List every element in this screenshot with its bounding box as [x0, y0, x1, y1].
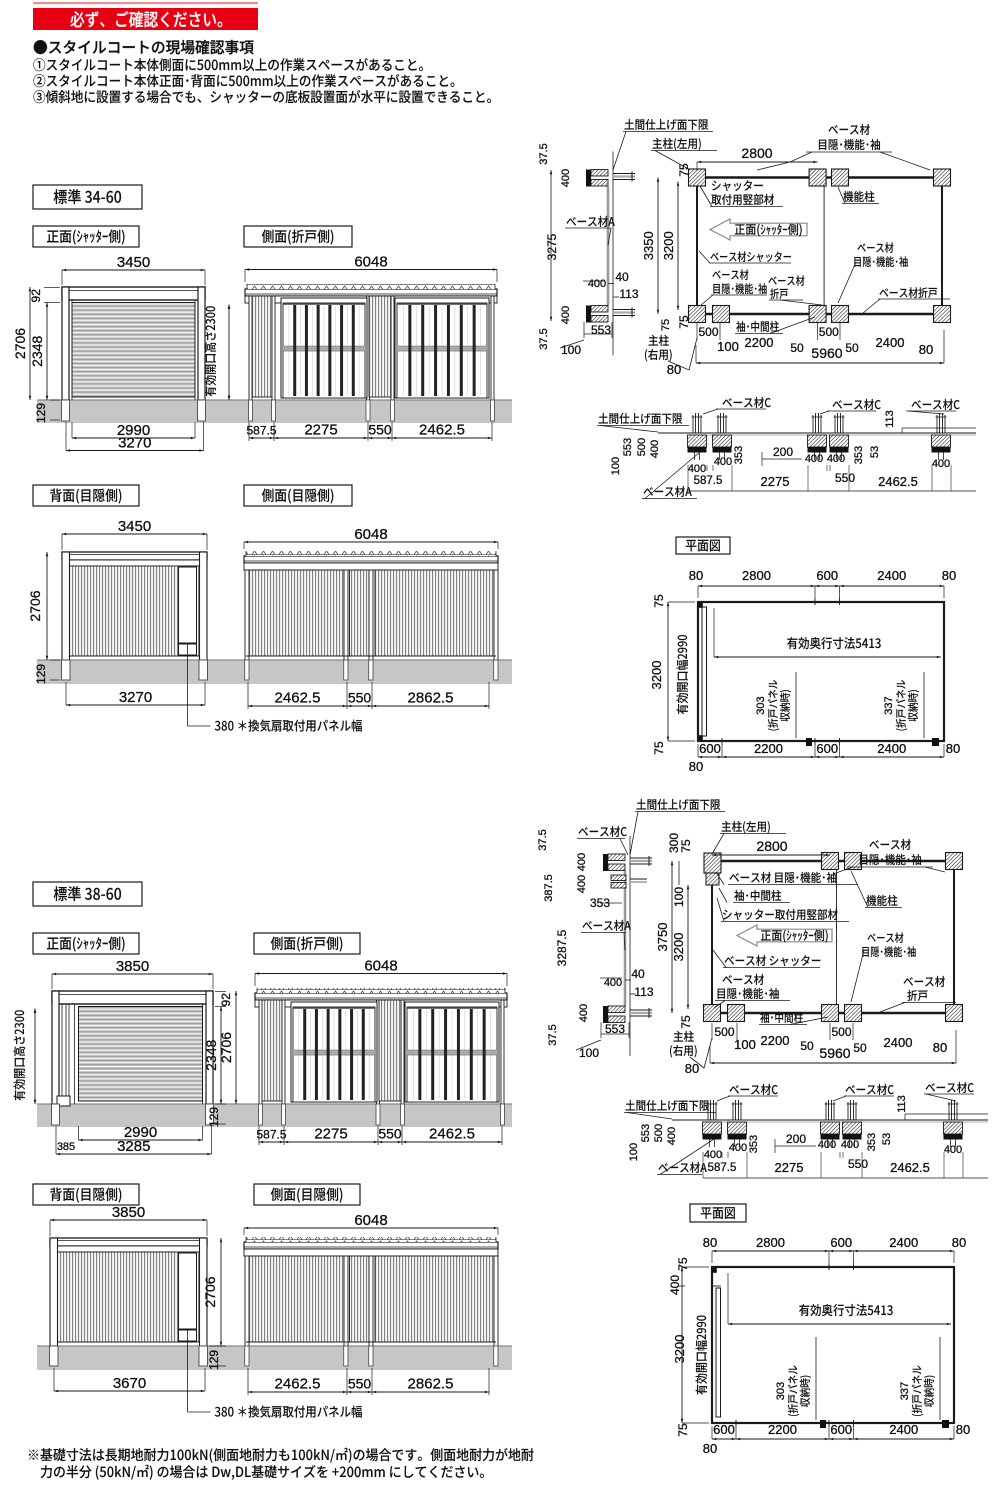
- svg-text:2400: 2400: [889, 1422, 918, 1437]
- svg-text:100: 100: [717, 339, 739, 354]
- svg-text:3750: 3750: [655, 923, 670, 952]
- svg-text:587.5: 587.5: [256, 1128, 286, 1142]
- svg-text:2200: 2200: [761, 1033, 790, 1048]
- svg-text:337: 337: [899, 1382, 911, 1400]
- svg-text:3850: 3850: [112, 1204, 145, 1221]
- svg-text:2400: 2400: [876, 335, 905, 350]
- svg-text:113: 113: [634, 985, 653, 999]
- svg-text:3275: 3275: [545, 233, 559, 260]
- svg-text:400: 400: [576, 853, 588, 871]
- svg-text:3200: 3200: [672, 1335, 687, 1364]
- svg-text:3350: 3350: [641, 231, 656, 260]
- svg-text:2275: 2275: [304, 422, 337, 439]
- svg-text:550: 550: [348, 1376, 372, 1392]
- svg-text:553: 553: [591, 323, 611, 337]
- svg-text:550: 550: [348, 690, 372, 706]
- svg-text:2462.5: 2462.5: [890, 1160, 930, 1175]
- svg-text:3285: 3285: [117, 1138, 150, 1155]
- svg-text:2275: 2275: [775, 1160, 804, 1175]
- svg-text:75: 75: [660, 319, 672, 331]
- svg-text:113: 113: [619, 287, 638, 301]
- svg-text:2706: 2706: [202, 1276, 218, 1307]
- svg-text:100: 100: [672, 887, 686, 907]
- svg-text:3270: 3270: [119, 689, 152, 706]
- svg-text:113: 113: [884, 410, 896, 428]
- svg-text:3287.5: 3287.5: [555, 929, 569, 966]
- svg-text:2462.5: 2462.5: [419, 422, 465, 439]
- svg-text:387.5: 387.5: [543, 874, 555, 902]
- svg-text:400: 400: [841, 1139, 859, 1151]
- svg-text:2200: 2200: [768, 1422, 797, 1437]
- svg-text:587.5: 587.5: [708, 1162, 737, 1174]
- svg-text:385: 385: [57, 1141, 75, 1153]
- svg-text:2862.5: 2862.5: [408, 690, 454, 707]
- svg-text:353: 353: [853, 446, 865, 464]
- svg-text:6048: 6048: [354, 1212, 387, 1229]
- svg-text:3200: 3200: [649, 661, 664, 690]
- svg-text:400: 400: [668, 1275, 682, 1295]
- svg-text:2275: 2275: [761, 474, 790, 489]
- svg-text:37.5: 37.5: [538, 143, 550, 164]
- svg-text:2706: 2706: [27, 590, 43, 621]
- svg-text:2400: 2400: [884, 1035, 913, 1050]
- svg-text:100: 100: [610, 457, 622, 475]
- svg-text:37.5: 37.5: [537, 829, 549, 850]
- svg-text:80: 80: [703, 1441, 717, 1456]
- svg-text:80: 80: [689, 568, 703, 583]
- svg-text:113: 113: [896, 1095, 908, 1113]
- svg-text:200: 200: [773, 445, 793, 459]
- svg-text:80: 80: [946, 741, 960, 756]
- svg-text:3450: 3450: [117, 254, 150, 271]
- svg-text:50: 50: [853, 1041, 867, 1055]
- svg-text:600: 600: [699, 741, 721, 756]
- svg-text:129: 129: [34, 664, 48, 684]
- svg-text:2400: 2400: [877, 568, 906, 583]
- svg-text:400: 400: [604, 977, 622, 989]
- svg-text:3850: 3850: [116, 958, 149, 975]
- svg-text:587.5: 587.5: [694, 475, 723, 487]
- svg-text:40: 40: [631, 967, 645, 981]
- svg-text:600: 600: [816, 568, 838, 583]
- svg-text:550: 550: [378, 1126, 402, 1142]
- svg-text:400: 400: [576, 875, 588, 893]
- svg-text:92: 92: [219, 993, 233, 1007]
- svg-text:400: 400: [932, 458, 950, 470]
- svg-text:2275: 2275: [314, 1126, 347, 1143]
- svg-text:2706: 2706: [218, 1032, 234, 1063]
- svg-text:5960: 5960: [819, 1045, 850, 1061]
- svg-text:2800: 2800: [756, 838, 787, 854]
- svg-text:100: 100: [734, 1037, 756, 1052]
- svg-text:75: 75: [679, 1015, 693, 1029]
- svg-text:2200: 2200: [754, 741, 783, 756]
- svg-text:2800: 2800: [756, 1235, 785, 1250]
- svg-text:5960: 5960: [811, 345, 842, 361]
- svg-text:303: 303: [775, 1382, 787, 1400]
- svg-text:50: 50: [845, 341, 859, 355]
- svg-text:400: 400: [649, 440, 661, 458]
- svg-text:400: 400: [729, 1142, 747, 1154]
- svg-text:200: 200: [786, 1132, 806, 1146]
- svg-text:550: 550: [368, 422, 392, 438]
- svg-text:80: 80: [919, 342, 933, 357]
- svg-text:400: 400: [944, 1144, 962, 1156]
- svg-text:75: 75: [652, 594, 666, 608]
- svg-text:129: 129: [207, 1350, 221, 1370]
- svg-text:550: 550: [848, 1157, 868, 1171]
- svg-text:50: 50: [790, 341, 804, 355]
- svg-text:400: 400: [704, 1149, 722, 1161]
- svg-text:80: 80: [667, 362, 681, 377]
- svg-text:400: 400: [560, 169, 572, 187]
- svg-text:2462.5: 2462.5: [878, 474, 918, 489]
- svg-text:553: 553: [622, 438, 634, 456]
- svg-text:2400: 2400: [889, 1235, 918, 1250]
- svg-text:500: 500: [819, 325, 839, 339]
- svg-text:353: 353: [733, 446, 745, 464]
- svg-text:3450: 3450: [118, 518, 151, 535]
- svg-text:600: 600: [830, 1422, 852, 1437]
- svg-text:500: 500: [653, 1124, 665, 1142]
- svg-text:80: 80: [685, 1061, 699, 1076]
- svg-text:2348: 2348: [29, 335, 45, 366]
- svg-text:3670: 3670: [113, 1375, 146, 1392]
- svg-text:80: 80: [942, 568, 956, 583]
- svg-text:600: 600: [713, 1422, 735, 1437]
- svg-text:600: 600: [816, 741, 838, 756]
- svg-text:2348: 2348: [203, 1039, 219, 1070]
- svg-text:75: 75: [676, 1257, 690, 1271]
- svg-text:600: 600: [830, 1235, 852, 1250]
- svg-text:550: 550: [835, 471, 855, 485]
- svg-text:3200: 3200: [661, 231, 676, 260]
- svg-text:80: 80: [703, 1235, 717, 1250]
- svg-text:400: 400: [827, 453, 845, 465]
- svg-text:400: 400: [588, 278, 606, 290]
- svg-text:353: 353: [866, 1133, 878, 1151]
- svg-text:6048: 6048: [354, 254, 387, 271]
- svg-text:400: 400: [560, 306, 572, 324]
- svg-text:75: 75: [677, 163, 691, 177]
- svg-text:353: 353: [748, 1135, 760, 1153]
- svg-text:100: 100: [628, 1143, 640, 1161]
- svg-text:500: 500: [636, 438, 648, 456]
- svg-text:53: 53: [881, 1133, 893, 1145]
- svg-text:587.5: 587.5: [246, 424, 276, 438]
- svg-text:37.5: 37.5: [538, 328, 550, 349]
- svg-text:6048: 6048: [354, 526, 387, 543]
- svg-text:75: 75: [677, 315, 691, 329]
- svg-text:2200: 2200: [745, 335, 774, 350]
- svg-text:2800: 2800: [741, 145, 772, 161]
- svg-text:400: 400: [688, 463, 706, 475]
- svg-text:400: 400: [818, 1139, 836, 1151]
- svg-text:2400: 2400: [877, 741, 906, 756]
- svg-text:3200: 3200: [671, 933, 686, 962]
- svg-text:6048: 6048: [364, 958, 397, 975]
- svg-text:2800: 2800: [742, 568, 771, 583]
- svg-text:500: 500: [831, 1025, 851, 1039]
- svg-text:80: 80: [689, 759, 703, 774]
- svg-text:2462.5: 2462.5: [275, 690, 321, 707]
- svg-text:40: 40: [615, 270, 629, 284]
- svg-text:80: 80: [956, 1422, 970, 1437]
- svg-text:53: 53: [869, 446, 881, 458]
- svg-text:500: 500: [698, 325, 718, 339]
- svg-text:100: 100: [579, 1046, 599, 1060]
- svg-text:100: 100: [561, 343, 581, 357]
- svg-text:2706: 2706: [12, 328, 28, 359]
- svg-text:400: 400: [578, 1004, 590, 1022]
- svg-text:553: 553: [640, 1124, 652, 1142]
- svg-text:2862.5: 2862.5: [408, 1376, 454, 1393]
- svg-text:50: 50: [800, 1039, 814, 1053]
- svg-text:75: 75: [679, 839, 693, 853]
- svg-text:2462.5: 2462.5: [275, 1376, 321, 1393]
- svg-text:80: 80: [952, 1235, 966, 1250]
- svg-text:337: 337: [883, 696, 895, 714]
- svg-text:75: 75: [652, 741, 666, 755]
- svg-text:37.5: 37.5: [547, 1024, 559, 1045]
- svg-text:2462.5: 2462.5: [429, 1126, 475, 1143]
- svg-text:400: 400: [805, 453, 823, 465]
- svg-text:303: 303: [755, 696, 767, 714]
- svg-text:129: 129: [34, 403, 48, 423]
- svg-text:80: 80: [933, 1040, 947, 1055]
- svg-text:400: 400: [666, 1127, 678, 1145]
- svg-text:3270: 3270: [118, 435, 151, 452]
- svg-text:500: 500: [714, 1025, 734, 1039]
- svg-text:75: 75: [676, 1423, 690, 1437]
- svg-text:400: 400: [714, 456, 732, 468]
